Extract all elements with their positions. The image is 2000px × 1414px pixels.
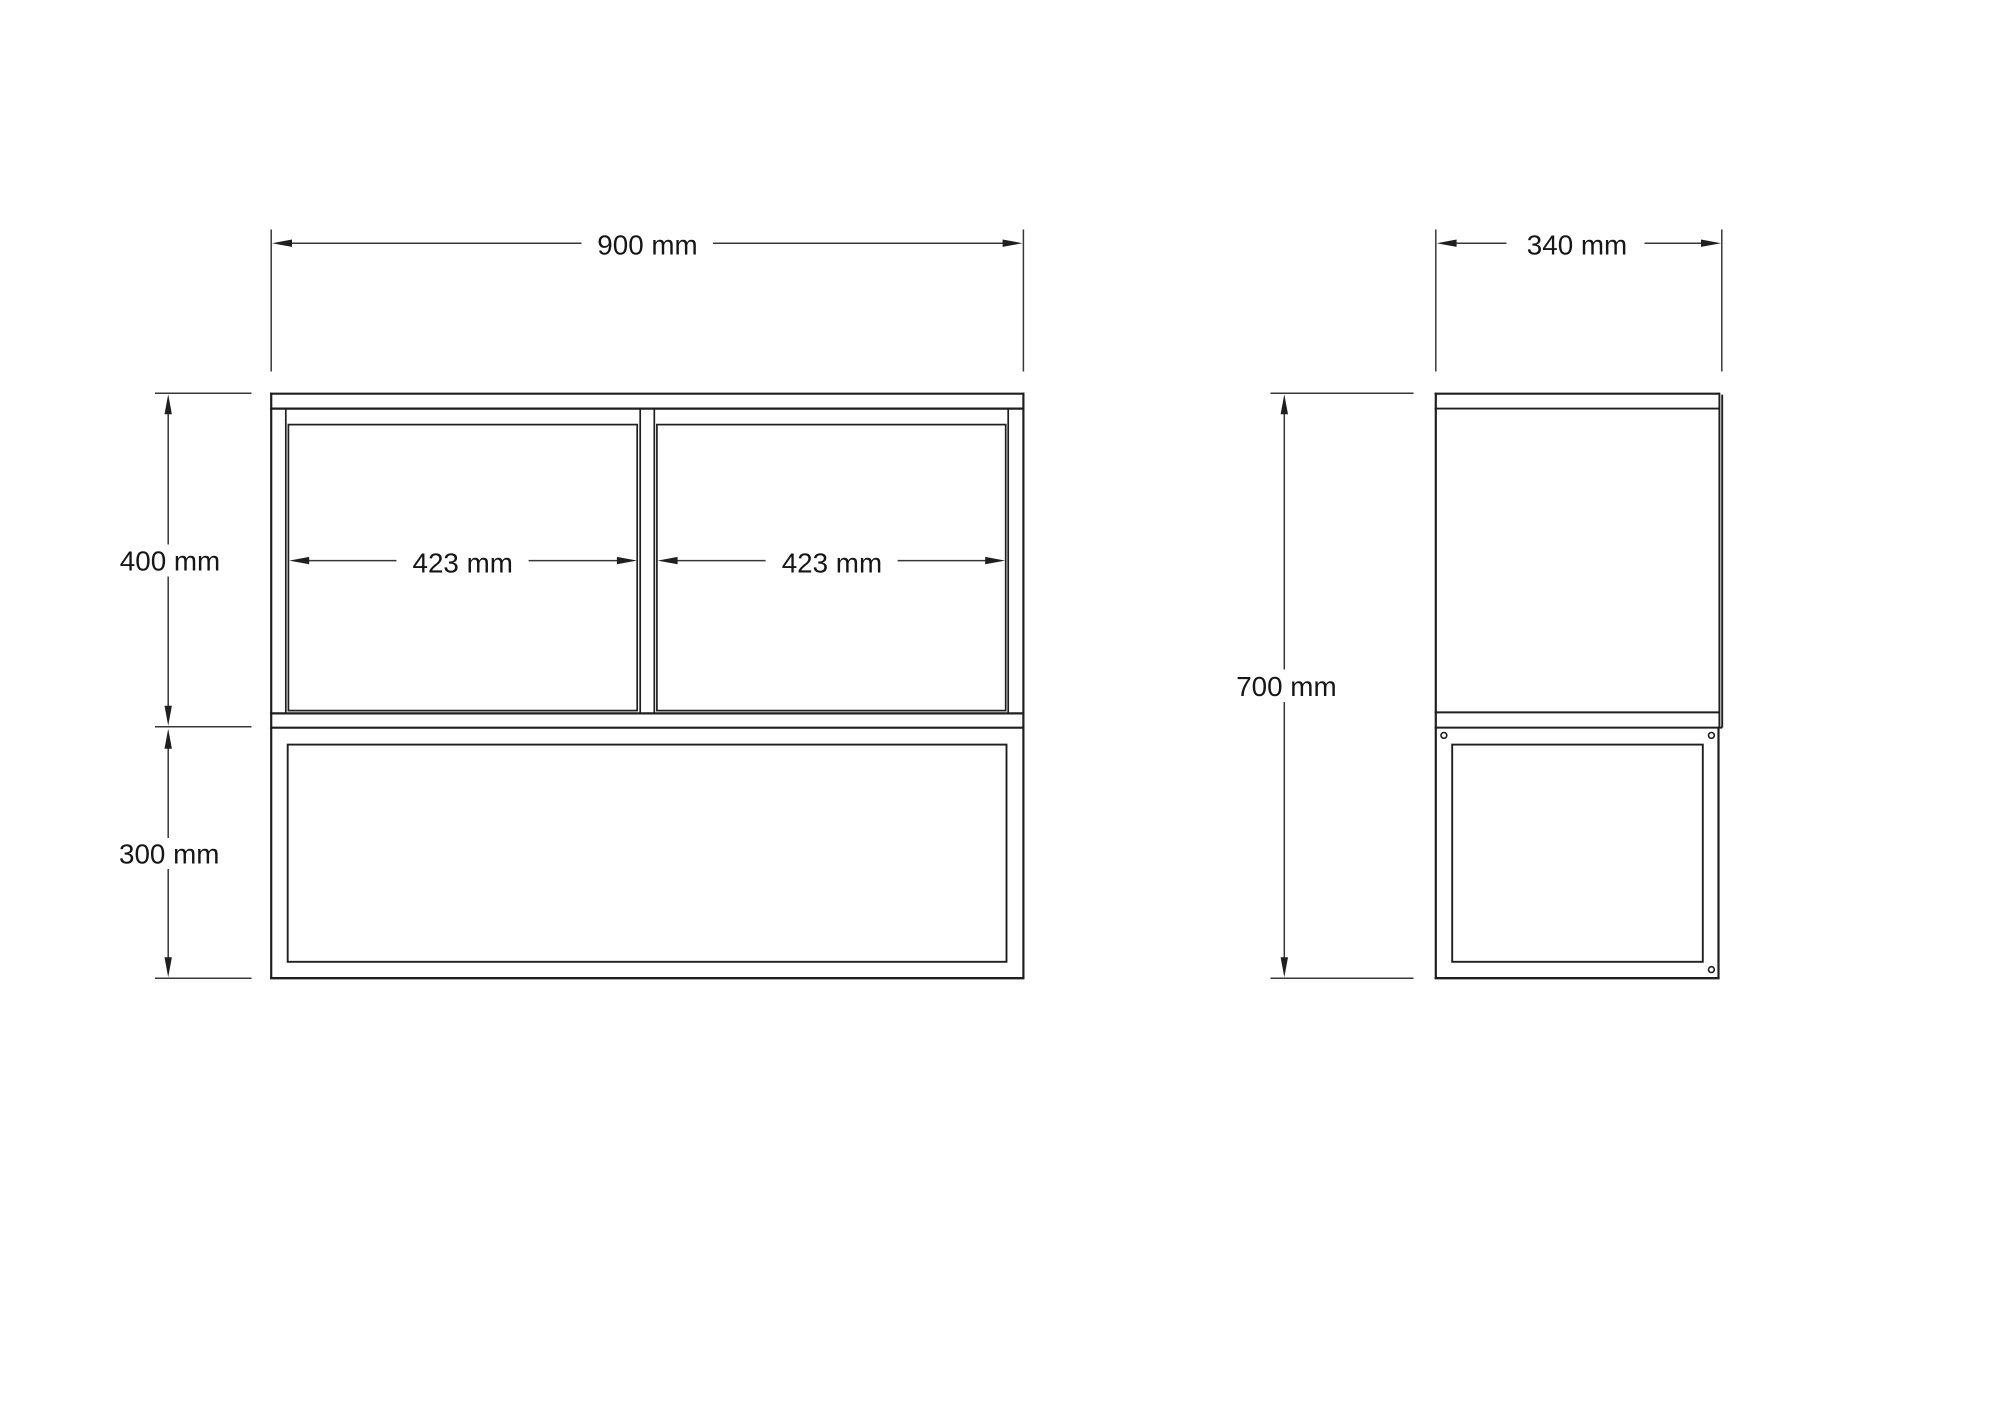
svg-text:300 mm: 300 mm [119,839,219,870]
svg-text:340 mm: 340 mm [1527,230,1627,261]
svg-text:423 mm: 423 mm [412,548,512,579]
svg-text:900 mm: 900 mm [597,230,697,261]
svg-text:423 mm: 423 mm [782,548,882,579]
svg-text:700 mm: 700 mm [1236,671,1336,702]
svg-text:400 mm: 400 mm [120,546,220,577]
